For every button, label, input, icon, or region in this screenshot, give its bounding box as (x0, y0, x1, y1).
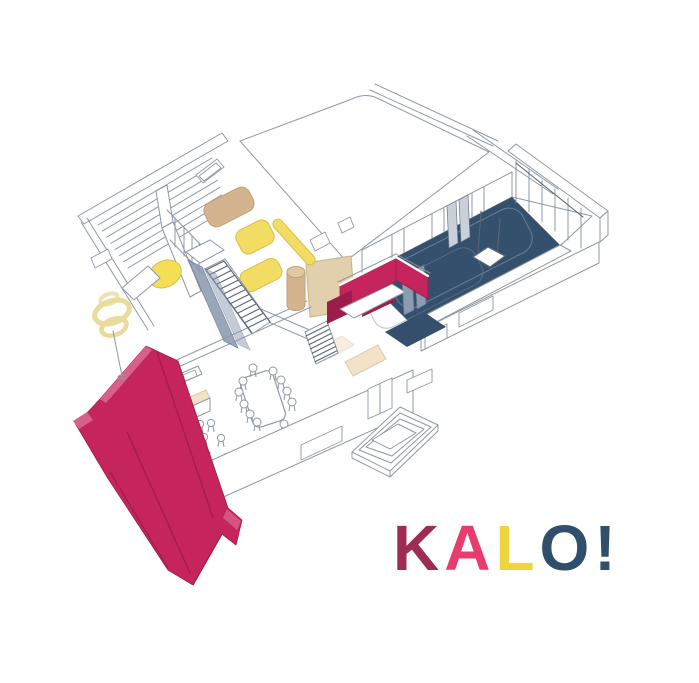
service-stair (305, 321, 338, 364)
coffee-table (201, 184, 257, 230)
slide-pole (113, 331, 122, 376)
main-stair (186, 240, 270, 350)
cream-wall (345, 345, 386, 376)
logo-letter-a: A (444, 512, 495, 584)
logo-letter-k: K (393, 512, 444, 584)
logo-letter-exclaim: ! (594, 512, 620, 584)
column (287, 267, 305, 311)
window (196, 159, 224, 183)
deck-window (91, 249, 112, 268)
sofa (233, 217, 277, 257)
wall-bench (271, 217, 317, 267)
logo-kalo: KALO! (393, 516, 621, 580)
logo-letter-l: L (495, 512, 539, 584)
canvas: KALO! (0, 0, 699, 683)
logo-letter-o: O (540, 512, 595, 584)
